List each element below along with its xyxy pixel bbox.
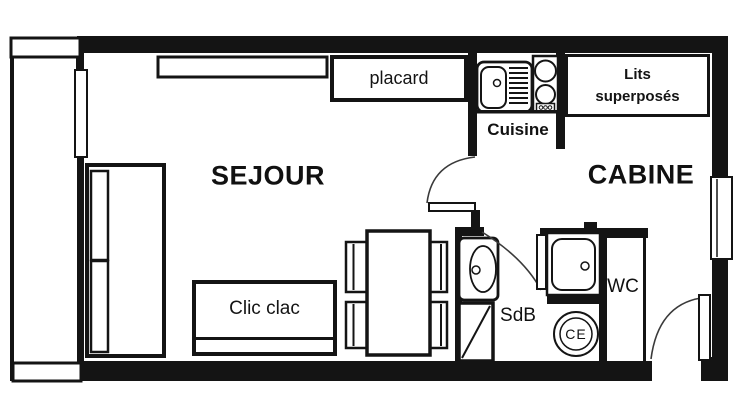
door-arc-entrance [651,298,701,359]
hob-knob [539,106,543,110]
balcony-edge [10,38,14,381]
door-leaf-entrance [699,295,710,360]
wardrobe-door-bottom [91,261,108,352]
water-heater-label: CE [565,326,586,342]
sofa-bed-divider [192,337,337,340]
hob-knob [548,106,552,110]
closet-box: placard [330,55,468,102]
room-label-wc: WC [607,276,639,298]
wall-left-lower [77,154,84,365]
washbasin-drain [472,266,480,274]
wardrobe-door-top [91,171,108,260]
hob-knob [544,106,548,110]
room-label-sejour: SEJOUR [211,161,325,192]
dining-table [367,231,430,355]
door-leaf-bathroom [537,235,546,289]
balcony [10,38,81,381]
closet-label: placard [369,68,428,89]
wall-wc-right [643,232,646,362]
bunk-beds-box: Lits superposés [565,54,710,117]
sink-basin [481,67,506,108]
room-label-sdb: SdB [500,305,536,327]
shower-drain [581,262,589,270]
window-right [711,177,732,259]
hob-burner-bottom [536,85,555,104]
wall-bath-top-stub [584,222,597,230]
wall-right-upper [712,36,728,178]
counter-front-edge [476,110,558,114]
wall-top [77,36,728,53]
wall-right-lower [712,256,728,361]
kitchen-unit [476,56,558,114]
room-label-cabine: CABINE [588,160,695,191]
sofa-bed-box: Clic clac [192,280,337,356]
hob-burner-top [535,61,556,82]
door-leaf-corridor [429,203,475,211]
floor-plan: placard Lits superposés Clic clac SEJOUR… [0,0,752,416]
bunk-beds-label-line1: Lits [624,64,651,86]
door-arc-corridor [427,157,475,203]
wall-bottom [81,361,652,381]
bunk-beds-label-line2: superposés [595,86,679,108]
balcony-rail-bottom [13,363,81,381]
balcony-rail-top [11,38,80,57]
room-label-cuisine: Cuisine [487,120,548,140]
sink-faucet [494,80,501,87]
window-left [75,70,87,157]
sofa-bed-label: Clic clac [229,298,300,320]
wall-shelf [158,57,327,77]
